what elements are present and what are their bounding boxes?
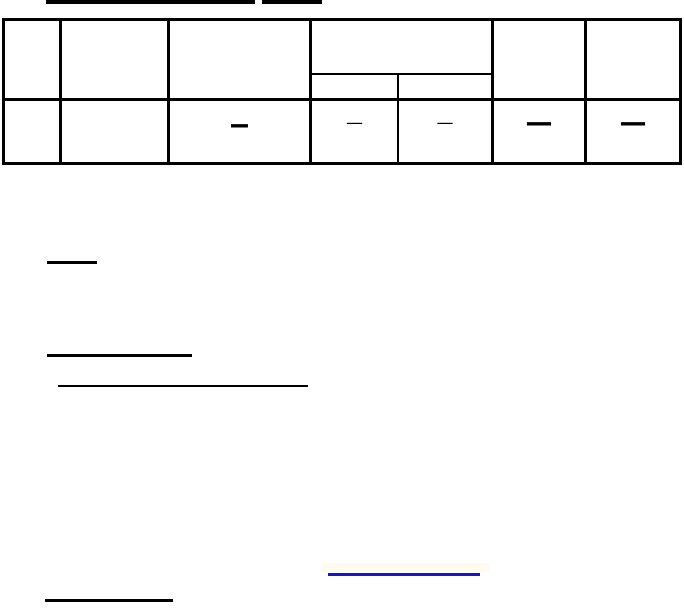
table-header-cell-4-merged: [312, 21, 494, 75]
dash-value: —: [437, 101, 454, 138]
table-subheader-cell-4b: [399, 75, 494, 101]
table-header-cell-6: [587, 21, 679, 101]
data-table: — — — — —: [2, 18, 682, 165]
table-data-cell-3: —: [170, 101, 312, 162]
subheading-underline: [58, 385, 308, 387]
table-data-cell-1: [5, 101, 62, 162]
title-underline-segment-2: [262, 0, 322, 4]
title-underline-segment-1: [46, 0, 255, 4]
dash-value: —: [230, 94, 249, 146]
dash-value: —: [526, 101, 553, 138]
table-header-cell-5: [494, 21, 587, 101]
dash-value: —: [620, 101, 647, 138]
table-header-cell-3: [170, 21, 312, 101]
table-data-cell-6: —: [587, 101, 679, 162]
faint-highlight: [322, 563, 490, 572]
dash-value: —: [346, 101, 363, 138]
heading-underline-2: [47, 354, 192, 357]
table-subheader-cell-4a: [312, 75, 399, 101]
document-page: — — — — —: [0, 0, 684, 608]
table-data-cell-4b: —: [399, 101, 494, 162]
bottom-heading-underline: [45, 599, 173, 602]
table-data-cell-2: [62, 101, 170, 162]
table-data-cell-5: —: [494, 101, 587, 162]
table-header-cell-2: [62, 21, 170, 101]
heading-underline-1: [47, 261, 97, 264]
table-header-cell-1: [5, 21, 62, 101]
table-data-cell-4a: —: [312, 101, 399, 162]
hyperlink-underline[interactable]: [328, 573, 480, 576]
